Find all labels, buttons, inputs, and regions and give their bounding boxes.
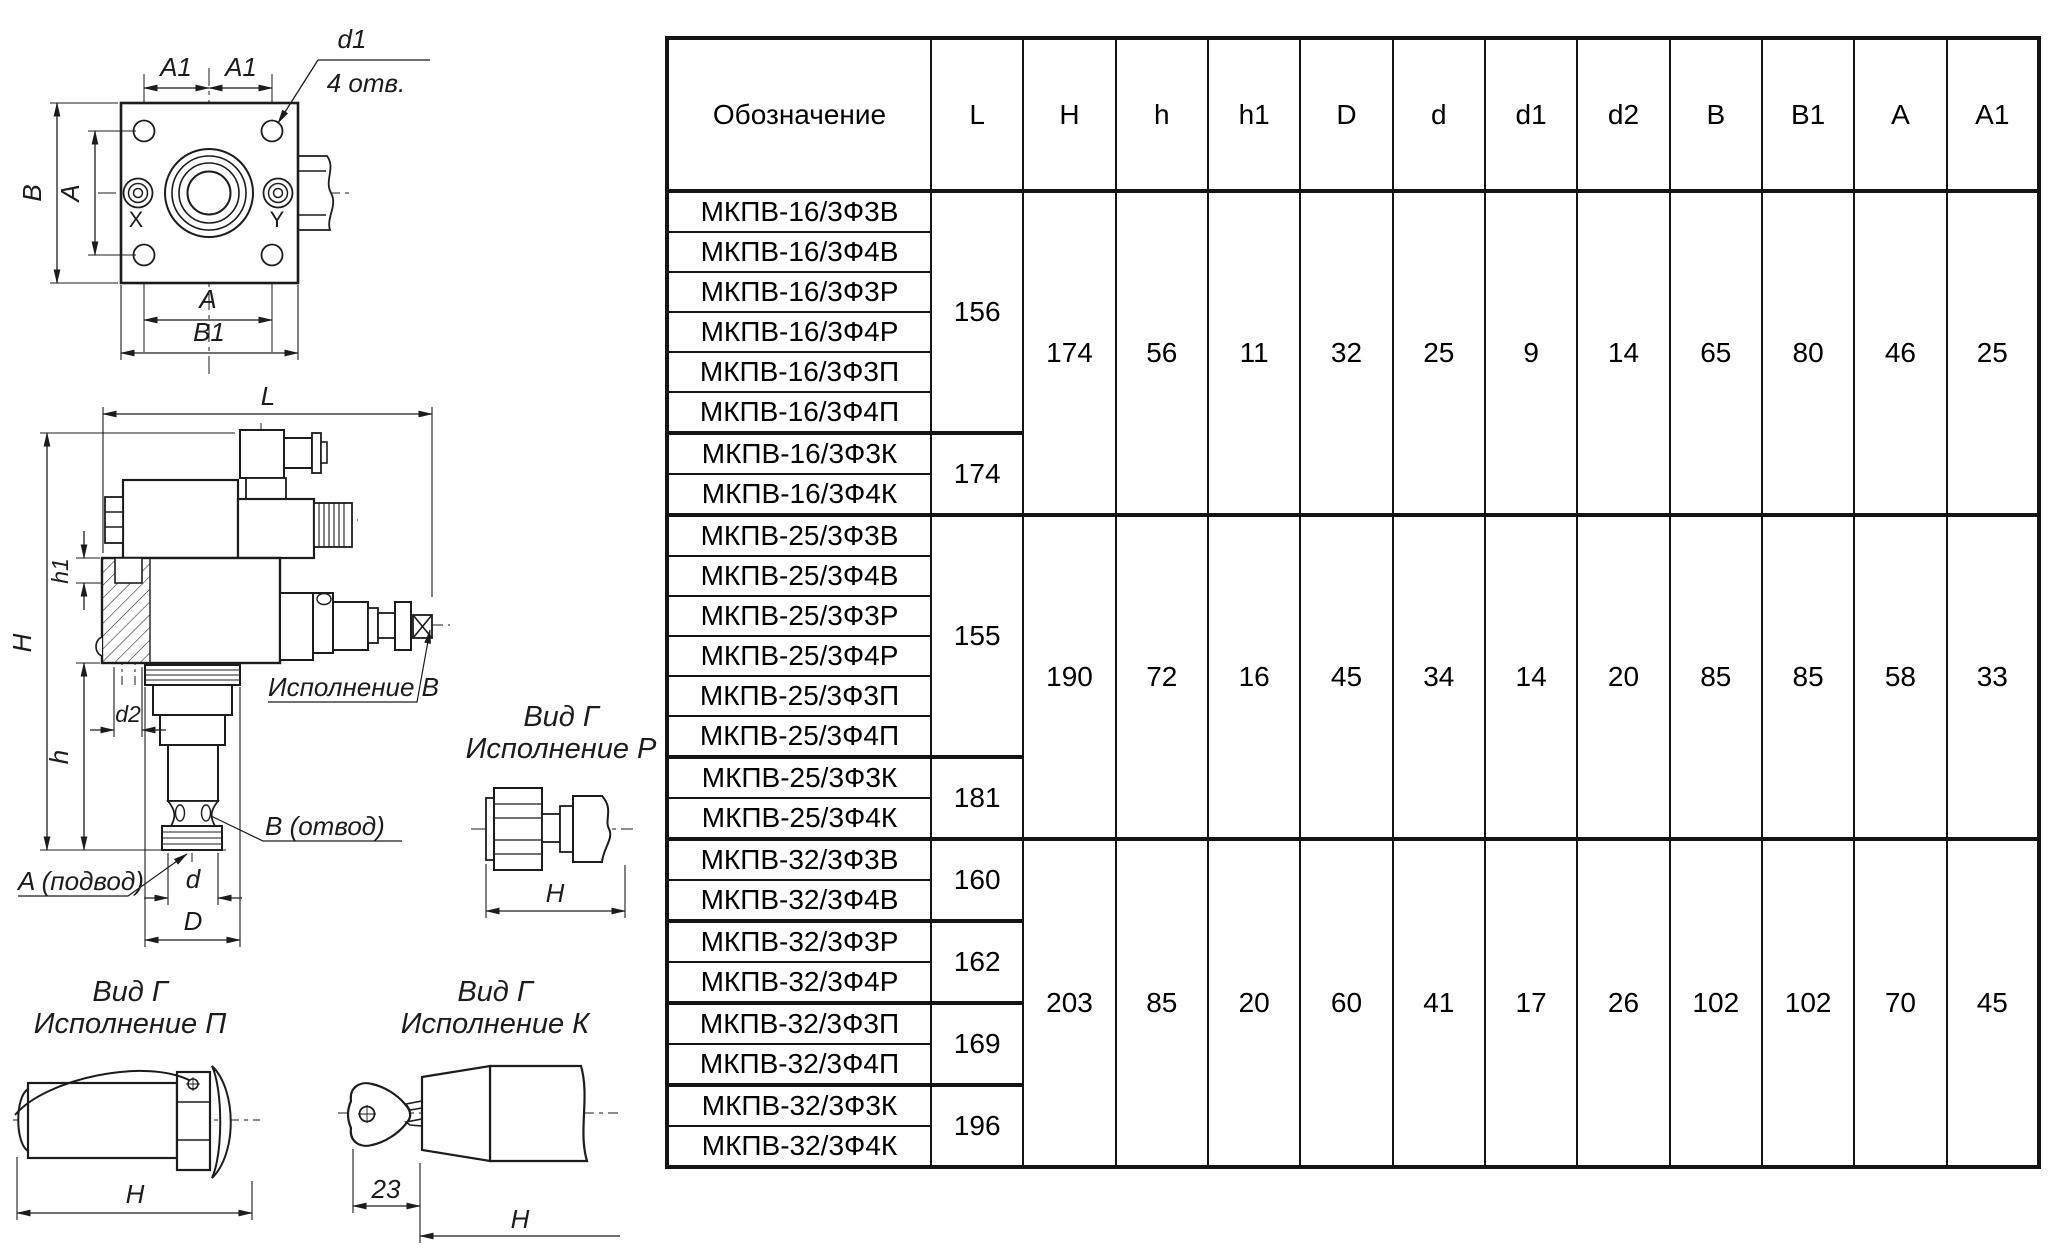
designation-cell: МКПВ-32/3Ф3П: [667, 1003, 931, 1044]
shared-value-cell: 72: [1116, 515, 1208, 839]
l-value-cell: 156: [931, 191, 1023, 433]
shared-value-cell: 20: [1577, 515, 1669, 839]
dim-label-h: h: [44, 750, 74, 764]
l-value-cell: 181: [931, 757, 1023, 839]
dim-label-d-big: D: [184, 906, 203, 936]
dim-label-h-total: H: [10, 633, 37, 652]
dim-label-a-bottom: A: [197, 284, 216, 314]
designation-cell: МКПВ-16/3Ф3Р: [667, 272, 931, 312]
header-h1: h1: [1208, 38, 1300, 191]
shared-value-cell: 45: [1300, 515, 1392, 839]
header-d: d: [1393, 38, 1485, 191]
holes-count-label: 4 отв.: [327, 68, 406, 98]
designation-cell: МКПВ-32/3Ф4Р: [667, 962, 931, 1003]
header-d2: d2: [1577, 38, 1669, 191]
l-value-cell: 160: [931, 839, 1023, 921]
view-g-version-k-drawing: Вид Г Исполнение К 23 H: [300, 965, 645, 1254]
a-port-label: A (подвод): [16, 866, 144, 896]
designation-cell: МКПВ-25/3Ф4Р: [667, 636, 931, 676]
shared-value-cell: 11: [1208, 191, 1300, 515]
shared-value-cell: 58: [1854, 515, 1946, 839]
view-r-dim-h: H: [546, 878, 565, 908]
shared-value-cell: 102: [1762, 839, 1854, 1167]
table-row: МКПВ-32/3Ф3В1602038520604117261021027045: [667, 839, 2039, 880]
table-row: МКПВ-16/3Ф3В1561745611322591465804625: [667, 191, 2039, 232]
shared-value-cell: 190: [1023, 515, 1115, 839]
shared-value-cell: 70: [1854, 839, 1946, 1167]
designation-cell: МКПВ-32/3Ф3В: [667, 839, 931, 880]
shared-value-cell: 85: [1670, 515, 1762, 839]
shared-value-cell: 14: [1577, 191, 1669, 515]
designation-cell: МКПВ-16/3Ф4К: [667, 474, 931, 515]
designation-cell: МКПВ-16/3Ф4В: [667, 232, 931, 272]
designation-cell: МКПВ-25/3Ф4В: [667, 556, 931, 596]
dimensions-table-body: МКПВ-16/3Ф3В1561745611322591465804625МКП…: [667, 191, 2039, 1167]
designation-cell: МКПВ-16/3Ф3П: [667, 352, 931, 392]
dim-label-l: L: [261, 385, 275, 411]
shared-value-cell: 65: [1670, 191, 1762, 515]
header-h: h: [1116, 38, 1208, 191]
dim-label-d: d: [186, 864, 202, 894]
valve-side-view-drawing: L H h1 h d2 Исполнение В B (отвод) A (по…: [10, 385, 460, 963]
header-l: L: [931, 38, 1023, 191]
port-label-y: Y: [270, 207, 285, 232]
valve-datasheet-page: A1 A1 d1 4 отв. B A X Y A B1: [0, 0, 2048, 1254]
header-designation: Обозначение: [667, 38, 931, 191]
dim-label-a1-left: A1: [158, 52, 192, 82]
designation-cell: МКПВ-16/3Ф4Р: [667, 312, 931, 352]
version-b-label: Исполнение В: [268, 672, 439, 702]
view-r-title-line2: Исполнение Р: [466, 733, 657, 765]
view-p-title-line2: Исполнение П: [34, 1008, 227, 1040]
dim-label-h1: h1: [47, 558, 73, 584]
dim-label-d2: d2: [115, 701, 141, 727]
header-h-cap: H: [1023, 38, 1115, 191]
designation-cell: МКПВ-16/3Ф4П: [667, 392, 931, 433]
view-k-title-line2: Исполнение К: [401, 1008, 591, 1040]
view-p-title-line1: Вид Г: [92, 976, 170, 1008]
l-value-cell: 196: [931, 1085, 1023, 1167]
shared-value-cell: 85: [1116, 839, 1208, 1167]
designation-cell: МКПВ-16/3Ф3К: [667, 433, 931, 474]
shared-value-cell: 33: [1947, 515, 2039, 839]
shared-value-cell: 174: [1023, 191, 1115, 515]
shared-value-cell: 14: [1485, 515, 1577, 839]
shared-value-cell: 56: [1116, 191, 1208, 515]
shared-value-cell: 45: [1947, 839, 2039, 1167]
shared-value-cell: 46: [1854, 191, 1946, 515]
header-b1: B1: [1762, 38, 1854, 191]
header-a1: A1: [1947, 38, 2039, 191]
view-p-dim-h: H: [126, 1179, 145, 1209]
view-k-dim-23: 23: [371, 1174, 401, 1204]
view-g-version-r-drawing: Вид Г Исполнение Р H: [455, 690, 665, 945]
designation-cell: МКПВ-32/3Ф4П: [667, 1044, 931, 1085]
designation-cell: МКПВ-32/3Ф4В: [667, 880, 931, 921]
shared-value-cell: 32: [1300, 191, 1392, 515]
shared-value-cell: 25: [1947, 191, 2039, 515]
dim-label-b1: B1: [193, 317, 225, 347]
shared-value-cell: 41: [1393, 839, 1485, 1167]
shared-value-cell: 25: [1393, 191, 1485, 515]
shared-value-cell: 34: [1393, 515, 1485, 839]
l-value-cell: 155: [931, 515, 1023, 757]
designation-cell: МКПВ-25/3Ф3В: [667, 515, 931, 556]
b-port-label: B (отвод): [265, 811, 385, 841]
designation-cell: МКПВ-25/3Ф4П: [667, 716, 931, 757]
designation-cell: МКПВ-16/3Ф3В: [667, 191, 931, 232]
shared-value-cell: 17: [1485, 839, 1577, 1167]
view-k-dim-h: H: [511, 1204, 530, 1234]
shared-value-cell: 203: [1023, 839, 1115, 1167]
header-b-cap: B: [1670, 38, 1762, 191]
table-row: МКПВ-25/3Ф3В15519072164534142085855833: [667, 515, 2039, 556]
shared-value-cell: 60: [1300, 839, 1392, 1167]
shared-value-cell: 20: [1208, 839, 1300, 1167]
shared-value-cell: 80: [1762, 191, 1854, 515]
designation-cell: МКПВ-32/3Ф3Р: [667, 921, 931, 962]
designation-cell: МКПВ-25/3Ф3К: [667, 757, 931, 798]
port-label-x: X: [129, 207, 144, 232]
shared-value-cell: 9: [1485, 191, 1577, 515]
shared-value-cell: 16: [1208, 515, 1300, 839]
l-value-cell: 169: [931, 1003, 1023, 1085]
table-header-row: Обозначение L H h h1 D d d1 d2 B B1 A A1: [667, 38, 2039, 191]
header-d1: d1: [1485, 38, 1577, 191]
header-a-cap: A: [1854, 38, 1946, 191]
view-g-version-p-drawing: Вид Г Исполнение П H: [5, 965, 305, 1253]
shared-value-cell: 26: [1577, 839, 1669, 1167]
l-value-cell: 174: [931, 433, 1023, 515]
dimensions-table: Обозначение L H h h1 D d d1 d2 B B1 A A1…: [665, 36, 2041, 1169]
l-value-cell: 162: [931, 921, 1023, 1003]
dim-label-a1-right: A1: [223, 52, 257, 82]
view-r-title-line1: Вид Г: [523, 701, 601, 733]
shared-value-cell: 85: [1762, 515, 1854, 839]
dim-label-a-side: A: [55, 184, 85, 203]
header-d-cap: D: [1300, 38, 1392, 191]
view-k-title-line1: Вид Г: [457, 976, 535, 1008]
designation-cell: МКПВ-25/3Ф3Р: [667, 596, 931, 636]
designation-cell: МКПВ-32/3Ф4К: [667, 1126, 931, 1167]
designation-cell: МКПВ-25/3Ф3П: [667, 676, 931, 716]
dim-label-d1: d1: [338, 24, 367, 54]
shared-value-cell: 102: [1670, 839, 1762, 1167]
dim-label-b: B: [17, 184, 47, 201]
designation-cell: МКПВ-32/3Ф3К: [667, 1085, 931, 1126]
flange-view-drawing: A1 A1 d1 4 отв. B A X Y A B1: [0, 0, 460, 382]
designation-cell: МКПВ-25/3Ф4К: [667, 798, 931, 839]
